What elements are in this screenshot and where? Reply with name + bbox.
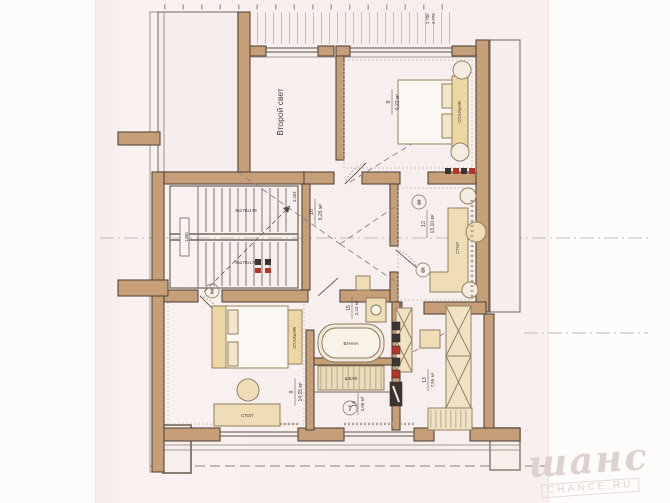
- desk-label-text: СТОЛ: [455, 242, 460, 254]
- dim-text: 3.393: [292, 191, 297, 202]
- bed-label-text: СПАЛЬНЯ: [457, 101, 462, 122]
- room-area: 3,06 м²: [360, 396, 365, 411]
- room-area: 14,05 м²: [298, 382, 304, 401]
- dim-labels-top-right: 2.785 2.772: [425, 13, 436, 24]
- hall-stool-icon: [356, 276, 370, 290]
- room-label-office: 12 13,10 м²: [421, 210, 436, 238]
- floorplan-drawing: 2 3 5 7 Второй свет 8 9,22 м² 10 6,26 м²…: [0, 0, 670, 503]
- stair-direction-line: [204, 206, 290, 292]
- room-number: 15: [346, 305, 352, 311]
- room-area: 9,22 м²: [395, 94, 401, 111]
- callout-number: 5: [421, 269, 425, 275]
- stair-flight-bottom-label: 9х270х179: [235, 260, 257, 265]
- second-light-label: Второй свет: [275, 88, 285, 136]
- room-number: 10: [309, 209, 315, 215]
- room-area: 13,10 м²: [430, 214, 436, 233]
- floorplan-scan-page: 2 3 5 7 Второй свет 8 9,22 м² 10 6,26 м²…: [0, 0, 670, 503]
- shaft-marker-column: [390, 322, 402, 406]
- dim-text: 2.772: [431, 13, 436, 24]
- room-area: 3,23 м²: [354, 300, 359, 315]
- callout-number: 3: [417, 201, 421, 207]
- dressing-wardrobes: [396, 306, 472, 430]
- callout-number: 2: [210, 290, 214, 296]
- room-label-bedroom9: 9 14,05 м²: [289, 378, 304, 406]
- room-number: 12: [421, 221, 427, 227]
- bedroom-desk-label: СТОЛ: [241, 413, 253, 418]
- second-light-text: Второй свет: [275, 88, 285, 136]
- socket-markers-stairs: [255, 259, 271, 273]
- bathtub-label: ВАННА: [344, 341, 359, 346]
- chair-icon: [237, 379, 259, 401]
- bottom-eaves-lines: [164, 445, 520, 450]
- room-number: 13: [422, 377, 428, 383]
- room-label-dressing: 13 7,55 м²: [422, 369, 435, 391]
- bed9-label: СПАЛЬНЯ: [292, 327, 297, 348]
- room-number: 9: [289, 390, 295, 393]
- room-number: 8: [386, 100, 392, 103]
- dim-label-stair-height: 3.393: [292, 191, 297, 202]
- chair-icon: [466, 222, 486, 242]
- plant-icon: [453, 61, 471, 79]
- stair-width-label: 1380: [184, 232, 189, 242]
- wardrobe-label: ШКАФ: [345, 376, 358, 381]
- room-label-hall: 10 6,26 м²: [309, 199, 324, 225]
- plant-icon: [462, 282, 478, 298]
- staircase: [170, 186, 298, 292]
- dim-text: 2.785: [425, 13, 430, 24]
- room-area: 6,26 м²: [318, 204, 324, 221]
- bed8-label: СПАЛЬНЯ: [457, 101, 462, 122]
- dresser-icon: [420, 330, 440, 348]
- bed-label-text: СПАЛЬНЯ: [292, 327, 297, 348]
- room-label-wc: 14 3,06 м²: [352, 393, 365, 415]
- office-desk-label: СТОЛ: [455, 242, 460, 254]
- stair-flight-top-label: 9х270х179: [235, 208, 257, 213]
- room-area: 7,55 м²: [430, 372, 435, 387]
- room-number: 14: [352, 401, 358, 407]
- stair-width-text: 1380: [184, 232, 189, 242]
- plant-icon: [451, 143, 469, 161]
- bed-icon-bedroom9: [212, 306, 302, 426]
- plant-icon: [460, 188, 476, 204]
